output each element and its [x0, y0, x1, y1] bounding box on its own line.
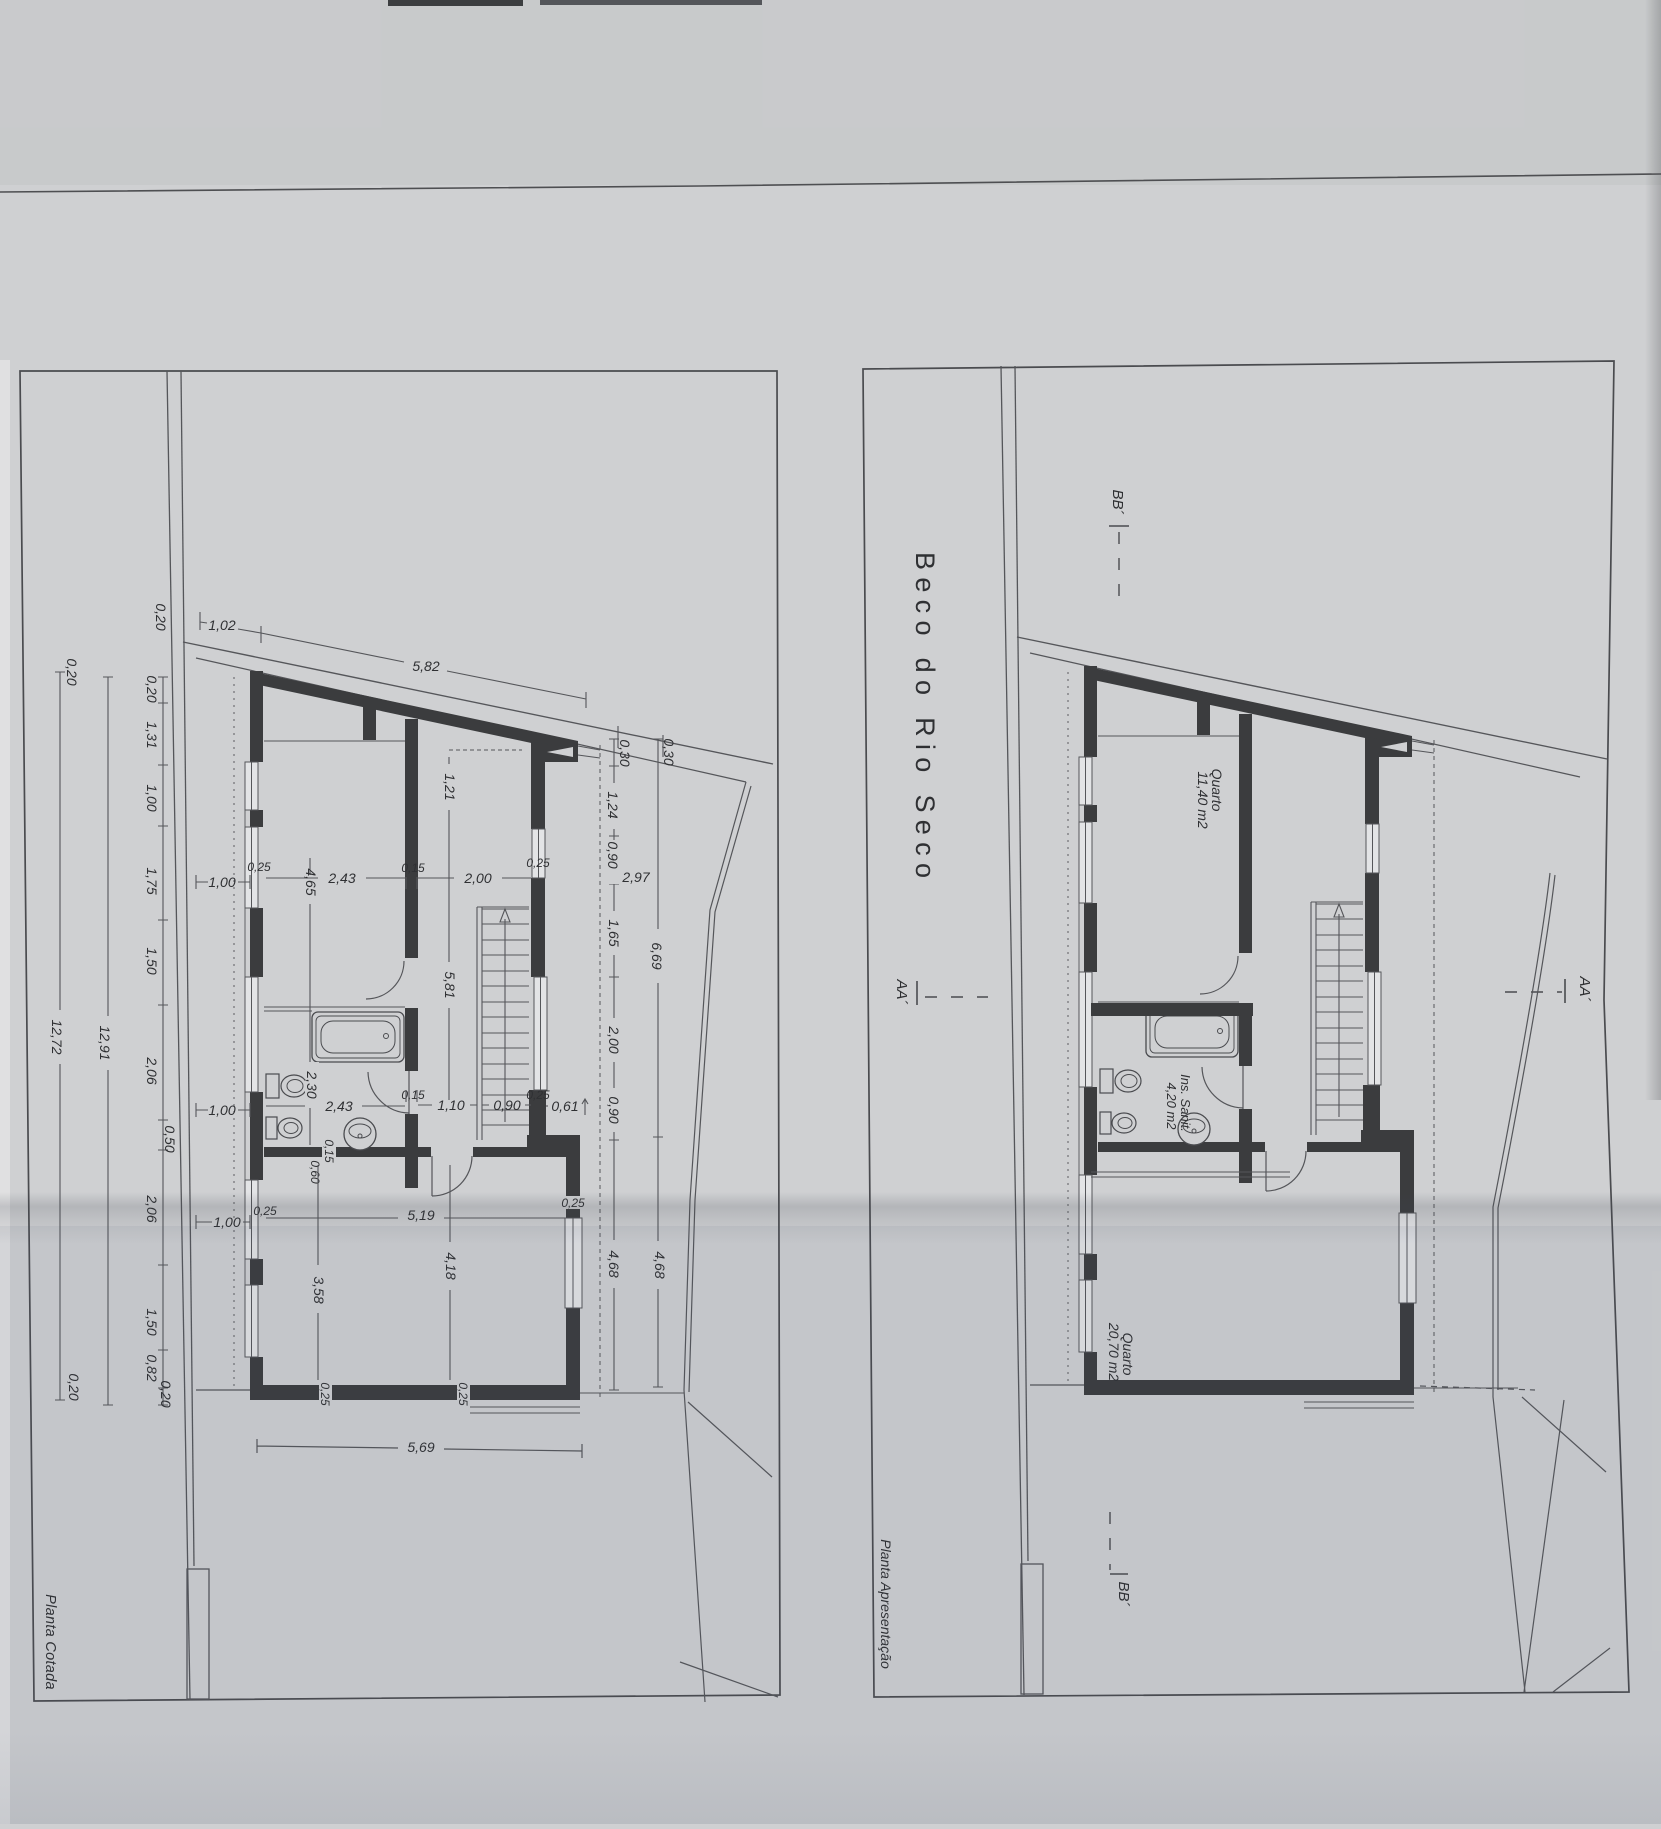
svg-text:0,20: 0,20 — [153, 603, 169, 630]
svg-text:AA´: AA´ — [893, 978, 910, 1004]
svg-text:1,31: 1,31 — [144, 721, 160, 748]
svg-text:0,25: 0,25 — [526, 1088, 550, 1102]
svg-text:1,21: 1,21 — [442, 773, 458, 800]
svg-text:0,15: 0,15 — [401, 861, 425, 875]
svg-text:0,30: 0,30 — [617, 739, 633, 766]
svg-text:2,97: 2,97 — [621, 869, 650, 885]
svg-text:1,65: 1,65 — [606, 919, 622, 946]
svg-text:1,00: 1,00 — [208, 874, 235, 890]
svg-text:0,25: 0,25 — [247, 860, 271, 874]
svg-text:0,20: 0,20 — [144, 675, 160, 702]
svg-text:0,20: 0,20 — [64, 658, 80, 685]
svg-text:4,20 m2: 4,20 m2 — [1164, 1083, 1179, 1131]
svg-text:6,69: 6,69 — [649, 942, 665, 969]
svg-text:5,81: 5,81 — [442, 971, 458, 998]
svg-text:2,43: 2,43 — [324, 1098, 352, 1114]
svg-text:2,00: 2,00 — [606, 1025, 622, 1053]
svg-text:0,90: 0,90 — [605, 841, 621, 868]
svg-text:2,30: 2,30 — [304, 1070, 320, 1098]
svg-text:1,10: 1,10 — [437, 1097, 464, 1113]
svg-text:Ins. Sanit.: Ins. Sanit. — [1178, 1074, 1193, 1132]
svg-text:0,15: 0,15 — [401, 1088, 425, 1102]
svg-text:0,30: 0,30 — [661, 738, 677, 765]
svg-text:1,24: 1,24 — [605, 791, 621, 818]
svg-text:0,90: 0,90 — [606, 1096, 622, 1123]
svg-text:11,40 m2: 11,40 m2 — [1195, 771, 1211, 829]
svg-text:0,60: 0,60 — [308, 1160, 322, 1184]
svg-text:0,61: 0,61 — [551, 1098, 578, 1114]
svg-text:Beco do Rio Seco: Beco do Rio Seco — [910, 552, 940, 882]
svg-text:12,91: 12,91 — [97, 1025, 113, 1060]
svg-text:0,25: 0,25 — [526, 856, 550, 870]
svg-text:1,50: 1,50 — [144, 947, 160, 974]
svg-text:2,43: 2,43 — [327, 870, 355, 886]
svg-text:2,00: 2,00 — [463, 870, 491, 886]
svg-text:1,00: 1,00 — [144, 784, 160, 811]
svg-text:2,06: 2,06 — [144, 1056, 160, 1084]
svg-text:1,02: 1,02 — [208, 617, 235, 633]
svg-text:4,65: 4,65 — [303, 868, 319, 895]
svg-text:1,00: 1,00 — [208, 1102, 235, 1118]
svg-text:12,72: 12,72 — [49, 1019, 65, 1054]
svg-text:0,90: 0,90 — [493, 1097, 520, 1113]
svg-text:0,15: 0,15 — [322, 1139, 336, 1163]
svg-text:BB´: BB´ — [1109, 489, 1126, 514]
svg-text:5,82: 5,82 — [412, 658, 439, 674]
svg-text:0,50: 0,50 — [162, 1125, 178, 1152]
svg-text:1,75: 1,75 — [144, 867, 160, 894]
svg-text:AA´: AA´ — [1576, 975, 1593, 1001]
